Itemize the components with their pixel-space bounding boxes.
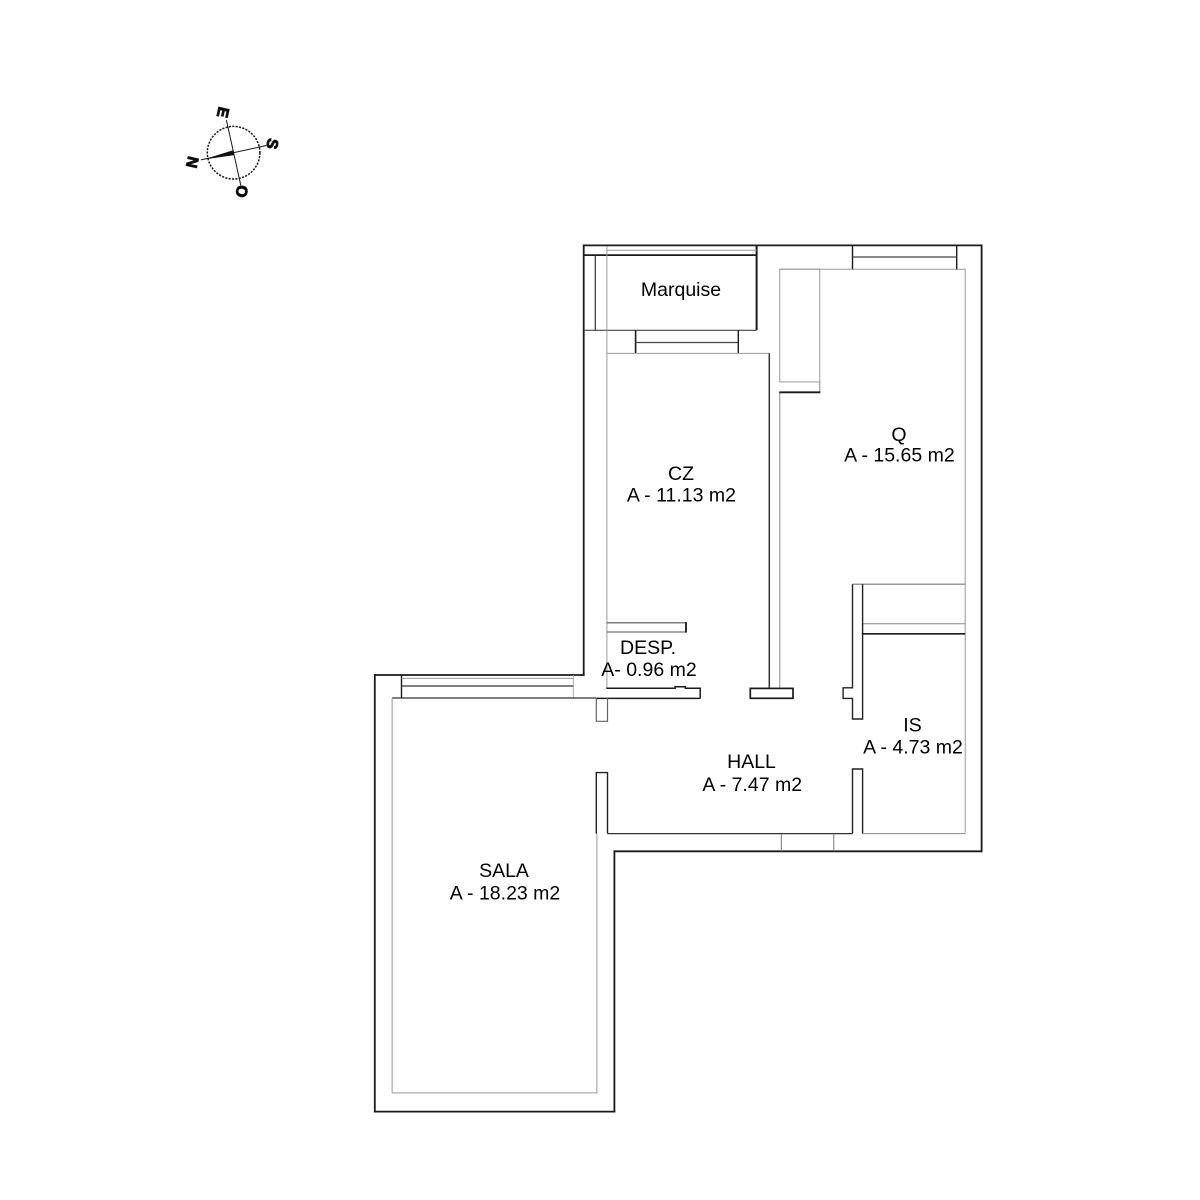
svg-text:A - 15.65 m2: A - 15.65 m2 <box>844 445 955 467</box>
svg-text:IS: IS <box>903 715 921 737</box>
svg-text:A - 11.13 m2: A - 11.13 m2 <box>627 484 736 506</box>
svg-text:A - 18.23 m2: A - 18.23 m2 <box>450 883 561 905</box>
svg-text:SALA: SALA <box>479 860 529 882</box>
svg-text:Q: Q <box>891 424 906 446</box>
svg-text:DESP.: DESP. <box>620 637 676 659</box>
svg-text:HALL: HALL <box>727 751 776 773</box>
svg-text:A - 4.73 m2: A - 4.73 m2 <box>863 737 963 759</box>
svg-text:CZ: CZ <box>668 463 694 485</box>
svg-text:A - 7.47 m2: A - 7.47 m2 <box>702 774 802 796</box>
svg-text:Marquise: Marquise <box>641 279 721 301</box>
svg-text:A- 0.96 m2: A- 0.96 m2 <box>601 659 696 681</box>
